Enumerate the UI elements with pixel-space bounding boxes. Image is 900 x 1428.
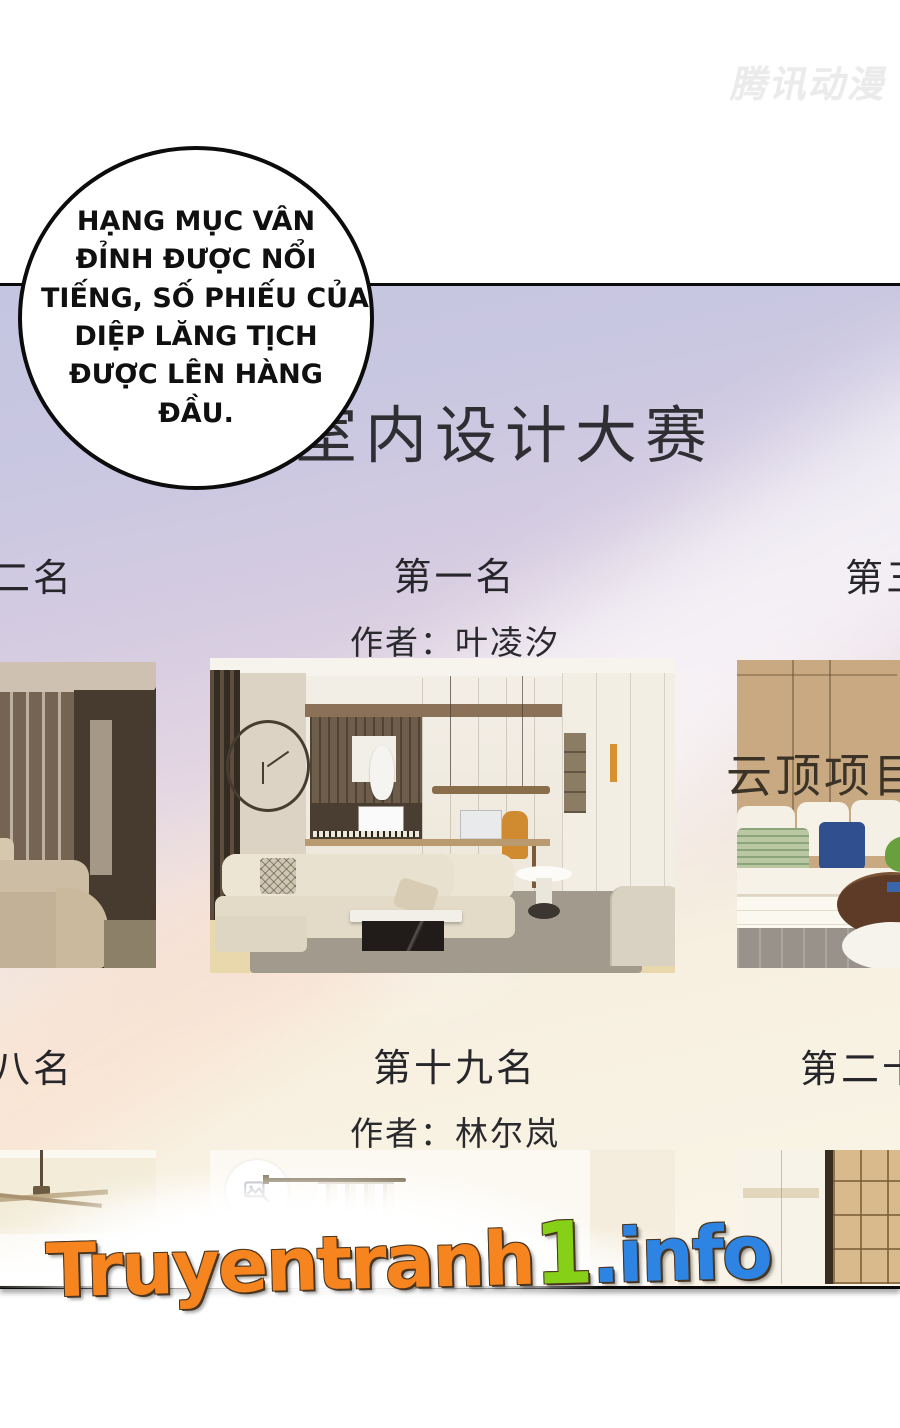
cat-figurine bbox=[370, 746, 394, 800]
desk bbox=[305, 839, 550, 846]
rank-label-third-partial: 第三 bbox=[845, 547, 900, 602]
grid-shelf bbox=[833, 1150, 900, 1284]
side-table-pedestal bbox=[536, 878, 552, 906]
window-slit bbox=[90, 720, 112, 875]
publisher-watermark: 腾讯动漫 bbox=[727, 54, 900, 108]
side-table-base bbox=[528, 903, 560, 919]
pendant-cord bbox=[522, 676, 523, 788]
green-pillow bbox=[737, 828, 809, 872]
piano-keys bbox=[313, 831, 419, 837]
speech-line: ĐƯỢC LÊN HÀNG bbox=[41, 356, 351, 394]
speech-bubble-text: HẠNG MỤC VÂN ĐỈNH ĐƯỢC NỔI TIẾNG, SỐ PHI… bbox=[41, 203, 351, 433]
rank-label-second-partial: 二名 bbox=[0, 547, 74, 602]
speech-bubble: HẠNG MỤC VÂN ĐỈNH ĐƯỢC NỔI TIẾNG, SỐ PHI… bbox=[18, 146, 374, 490]
pendant-cord bbox=[450, 676, 451, 788]
desktop-computer bbox=[460, 810, 502, 842]
patterned-pillow bbox=[260, 858, 296, 894]
rank-block-nineteenth: 第十九名 作者：林尔岚 bbox=[240, 1037, 670, 1155]
site-watermark-name: Truyentranh bbox=[45, 1216, 535, 1315]
rank-label-nineteenth: 第十九名 bbox=[240, 1037, 670, 1092]
photo-dark-living-room bbox=[0, 662, 156, 968]
site-watermark-domain: .info bbox=[591, 1210, 772, 1301]
pendant-light bbox=[432, 786, 550, 794]
comic-page: 腾讯动漫 室内设计大赛 二名 第一名 作者：叶凌汐 第三 bbox=[0, 0, 900, 1428]
orange-accent bbox=[610, 744, 617, 782]
tv-screen bbox=[358, 806, 404, 834]
rank-block-first: 第一名 作者：叶凌汐 bbox=[240, 546, 670, 664]
dark-divider bbox=[825, 1150, 833, 1284]
site-watermark: Truyentranh1.info bbox=[45, 1199, 772, 1318]
rank-label-twentieth-partial: 第二十 bbox=[800, 1038, 900, 1093]
speech-line: ĐỈNH ĐƯỢC NỔI bbox=[41, 241, 351, 279]
books bbox=[887, 882, 900, 892]
floor bbox=[104, 920, 156, 968]
sofa-chaise bbox=[215, 916, 307, 952]
photo-tan-living-room bbox=[737, 660, 900, 968]
coffee-table-base bbox=[362, 921, 444, 951]
site-watermark-number: 1 bbox=[532, 1203, 592, 1304]
speech-line: TIẾNG, SỐ PHIẾU CỦA bbox=[41, 280, 351, 318]
cabinet-line bbox=[781, 1150, 782, 1284]
rank-label-first: 第一名 bbox=[240, 546, 670, 601]
speech-line: HẠNG MỤC VÂN bbox=[41, 203, 351, 241]
orange-chair bbox=[502, 811, 528, 859]
author-label-first: 作者：叶凌汐 bbox=[240, 616, 670, 664]
wall-clock bbox=[226, 720, 310, 812]
rank-label-eighteenth-partial: 八名 bbox=[0, 1038, 74, 1093]
speech-line: ĐẦU. bbox=[41, 395, 351, 433]
photo-first-place-living-room bbox=[210, 658, 675, 973]
armchair bbox=[610, 886, 675, 966]
speech-line: DIỆP LĂNG TỊCH bbox=[41, 318, 351, 356]
wall-panel-line bbox=[737, 674, 897, 676]
overlay-caption: 云顶项目被 bbox=[726, 740, 900, 806]
shelf-niche bbox=[564, 733, 586, 813]
navy-pillow bbox=[819, 822, 865, 870]
